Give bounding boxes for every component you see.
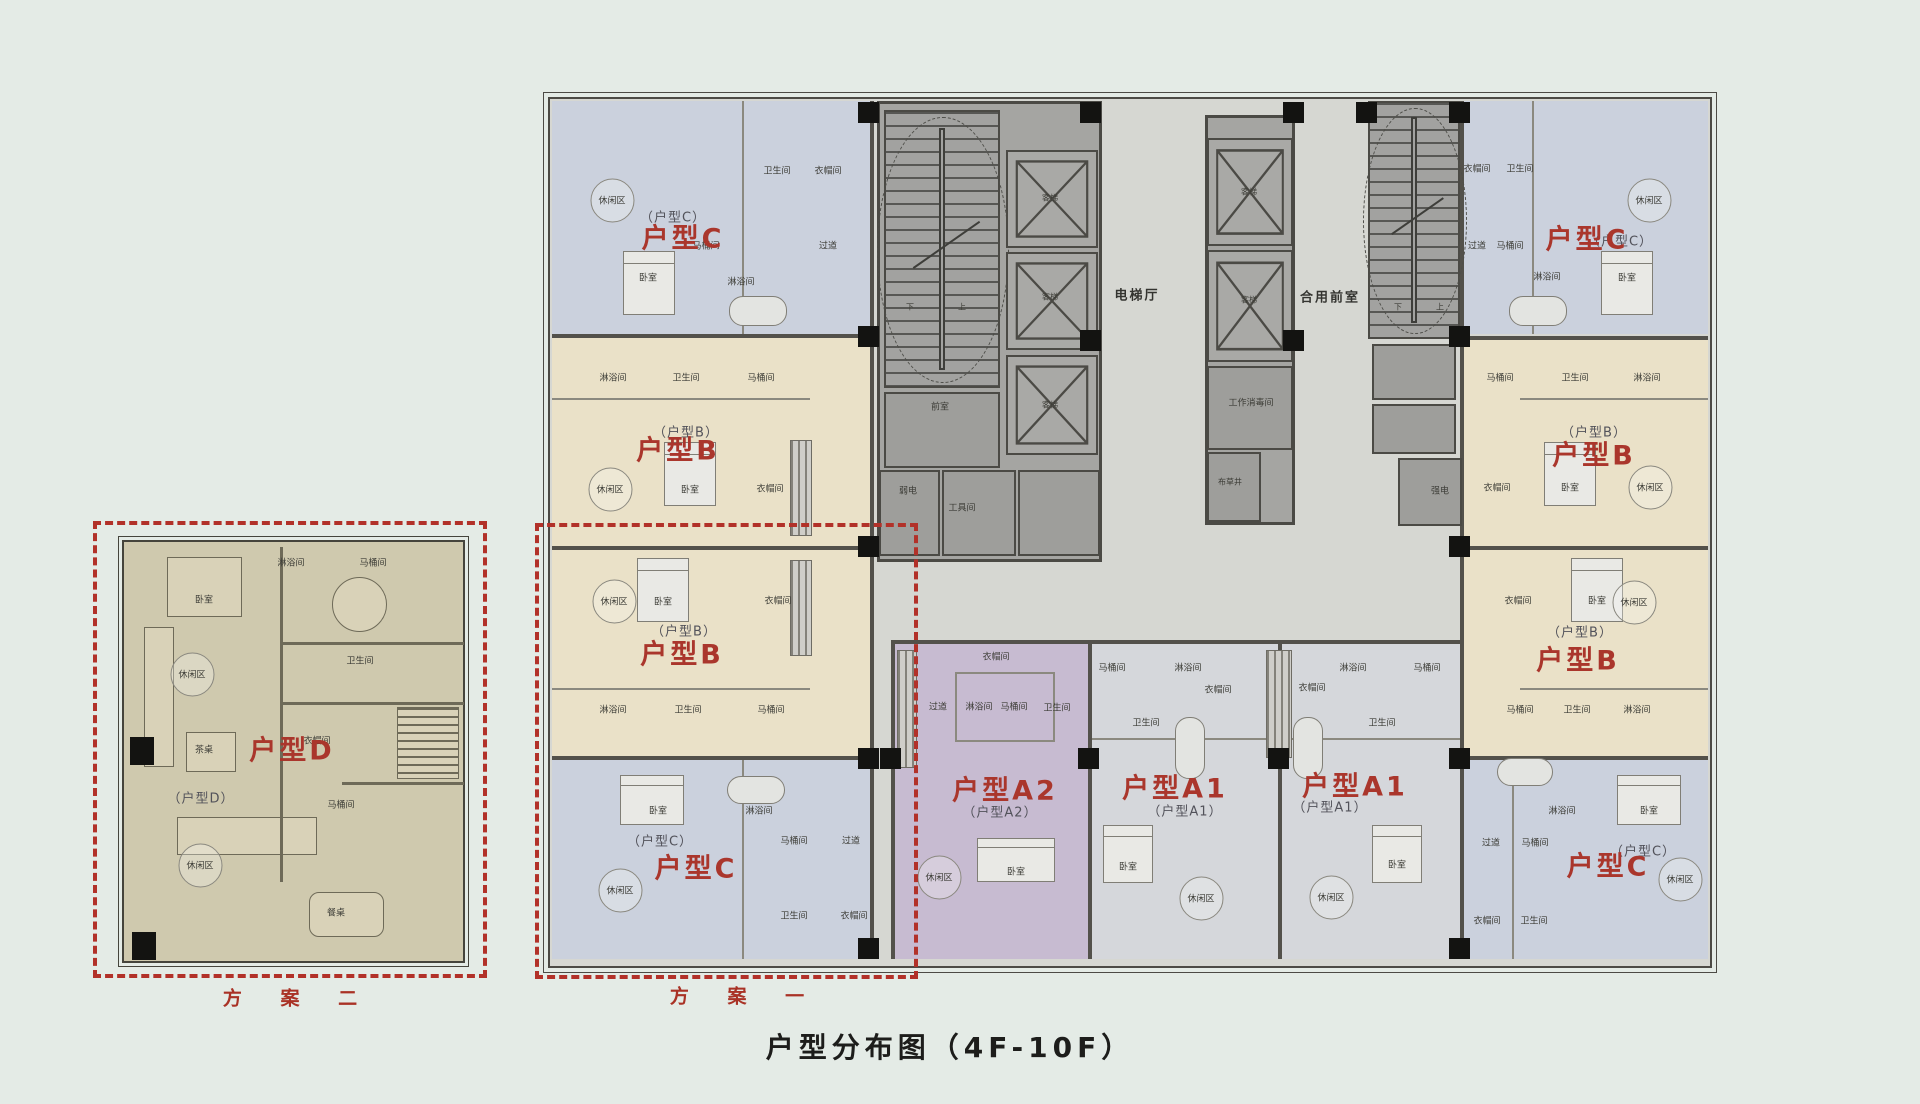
room-label: 工具间	[948, 501, 975, 514]
column	[1449, 536, 1470, 557]
room-label: 淋浴间	[1533, 270, 1560, 283]
room-label: 卧室	[681, 483, 699, 496]
unit-type-label: 户型A1	[1122, 767, 1228, 806]
room-label: 休闲区	[1317, 891, 1344, 904]
room-label: 卧室	[1561, 481, 1579, 494]
bed	[1103, 825, 1153, 883]
core-room	[1372, 404, 1456, 454]
room-label: 卫生间	[1506, 162, 1533, 175]
unit-type-label: 户型C	[1567, 845, 1650, 884]
column	[1283, 102, 1304, 123]
wall	[891, 640, 1462, 644]
room-label: 客梯	[1042, 400, 1058, 411]
room-label: 卫生间	[1520, 914, 1547, 927]
room-label: 衣帽间	[1463, 162, 1490, 175]
room-label: 布草井	[1218, 477, 1242, 488]
room-label: 休闲区	[1620, 596, 1647, 609]
stair-right	[1368, 101, 1460, 339]
room-label: 卫生间	[1563, 703, 1590, 716]
room-label: 衣帽间	[1298, 681, 1325, 694]
bathtub	[729, 296, 787, 326]
room-label: 卧室	[1007, 865, 1025, 878]
scheme-two-dashed-box	[93, 521, 487, 978]
room-label: 马桶间	[1413, 661, 1440, 674]
inner-partition	[1520, 688, 1708, 690]
room-label: 马桶间	[1496, 239, 1523, 252]
scheme-one-caption: 方 案 一	[670, 982, 820, 1009]
room-label: 工作消毒间	[1228, 396, 1273, 409]
room-label: 淋浴间	[1339, 661, 1366, 674]
room-label: 客梯	[1042, 292, 1058, 303]
scheme-one-dashed-box	[535, 523, 918, 979]
room-label: 淋浴间	[965, 700, 992, 713]
room-label: 淋浴间	[599, 371, 626, 384]
wall	[1462, 336, 1708, 340]
bed	[1617, 775, 1681, 825]
room-label: 过道	[929, 700, 947, 713]
room-label: 客梯	[1241, 295, 1257, 306]
inner-partition	[955, 740, 1055, 742]
closet-hatch	[790, 440, 812, 536]
room-label: 客梯	[1241, 187, 1257, 198]
room-label: 下	[1394, 302, 1402, 313]
room-label: 卧室	[639, 271, 657, 284]
floorplan-canvas: （户型C）（户型B）（户型B）（户型C）（户型C）（户型B）（户型B）（户型C）…	[0, 0, 1920, 1104]
room-label: 马桶间	[1486, 371, 1513, 384]
room-label: 前室	[931, 400, 949, 413]
inner-partition	[552, 398, 810, 400]
room-label: 衣帽间	[814, 164, 841, 177]
room-label: 休闲区	[1187, 892, 1214, 905]
inner-partition	[955, 672, 957, 742]
unit-type-label: 户型B	[636, 429, 720, 468]
room-label: 卫生间	[1132, 716, 1159, 729]
room-label: 马桶间	[1506, 703, 1533, 716]
core-room	[1018, 470, 1100, 556]
room-label: 淋浴间	[1623, 703, 1650, 716]
room-label: 合用前室	[1300, 287, 1360, 306]
room-label: 休闲区	[1636, 481, 1663, 494]
inner-partition	[1520, 398, 1708, 400]
room-label: 淋浴间	[1174, 661, 1201, 674]
unit-type-label: 户型B	[1552, 434, 1636, 473]
column	[858, 326, 879, 347]
inner-partition	[955, 672, 1055, 674]
unit-type-label: 户型C	[642, 217, 725, 256]
room-label: 衣帽间	[756, 482, 783, 495]
unit-type-label: 户型A2	[952, 769, 1058, 808]
room-label: 马桶间	[1098, 661, 1125, 674]
room-label: 过道	[1482, 836, 1500, 849]
unit-type-label: 户型C	[1546, 218, 1629, 257]
room-label: 休闲区	[925, 871, 952, 884]
room-label: 卧室	[1119, 860, 1137, 873]
room-label: 卧室	[1588, 594, 1606, 607]
inner-partition	[1512, 758, 1514, 959]
wall	[1088, 640, 1092, 959]
room-label: 强电	[1431, 484, 1449, 497]
column	[1080, 330, 1101, 351]
room-label: 客梯	[1042, 193, 1058, 204]
room-label: 衣帽间	[1483, 481, 1510, 494]
room-label: 卫生间	[1561, 371, 1588, 384]
column	[1356, 102, 1377, 123]
room-label: 马桶间	[1000, 700, 1027, 713]
elevator-cell	[1207, 250, 1293, 362]
room-label: 马桶间	[747, 371, 774, 384]
room-label: 卫生间	[763, 164, 790, 177]
core-room	[1372, 344, 1456, 400]
room-label: 卫生间	[1368, 716, 1395, 729]
column	[1268, 748, 1289, 769]
column	[1078, 748, 1099, 769]
unit-type-label: 户型B	[1536, 639, 1620, 678]
room-label: 弱电	[899, 484, 917, 497]
wall	[1462, 546, 1708, 550]
bathtub	[1509, 296, 1567, 326]
column	[1449, 938, 1470, 959]
page-title: 户型分布图（4F-10F）	[766, 1026, 1134, 1066]
room-label: 淋浴间	[1548, 804, 1575, 817]
bed	[1372, 825, 1422, 883]
closet-hatch	[1266, 650, 1292, 758]
room-label: 淋浴间	[727, 275, 754, 288]
unit-type-label: 户型A1	[1302, 765, 1408, 804]
stair-left	[884, 110, 1000, 388]
room-label: 过道	[819, 239, 837, 252]
wall	[552, 334, 872, 338]
room-label: 衣帽间	[1504, 594, 1531, 607]
room-label: 休闲区	[596, 483, 623, 496]
wall	[1462, 756, 1708, 760]
room-label: 卧室	[1618, 271, 1636, 284]
column	[1449, 326, 1470, 347]
column	[1080, 102, 1101, 123]
room-label: 衣帽间	[1473, 914, 1500, 927]
column	[1449, 748, 1470, 769]
room-label: 休闲区	[1635, 194, 1662, 207]
column	[858, 102, 879, 123]
room-label: 衣帽间	[982, 650, 1009, 663]
room-label: 卫生间	[672, 371, 699, 384]
room-label: 休闲区	[598, 194, 625, 207]
room-label: 马桶间	[1521, 836, 1548, 849]
bathtub	[1497, 758, 1553, 786]
room-label: 上	[1436, 302, 1444, 313]
column	[1449, 102, 1470, 123]
room-label: 过道	[1468, 239, 1486, 252]
room-label: 休闲区	[1666, 873, 1693, 886]
room-label: 卧室	[1640, 804, 1658, 817]
room-label: 上	[958, 302, 966, 313]
scheme-two-caption: 方 案 二	[223, 984, 373, 1011]
column	[1283, 330, 1304, 351]
room-label: 淋浴间	[1633, 371, 1660, 384]
room-label: 卧室	[1388, 858, 1406, 871]
room-label: 卫生间	[1043, 701, 1070, 714]
room-label: 电梯厅	[1114, 285, 1159, 304]
room-label: 下	[906, 302, 914, 313]
room-label: 衣帽间	[1204, 683, 1231, 696]
